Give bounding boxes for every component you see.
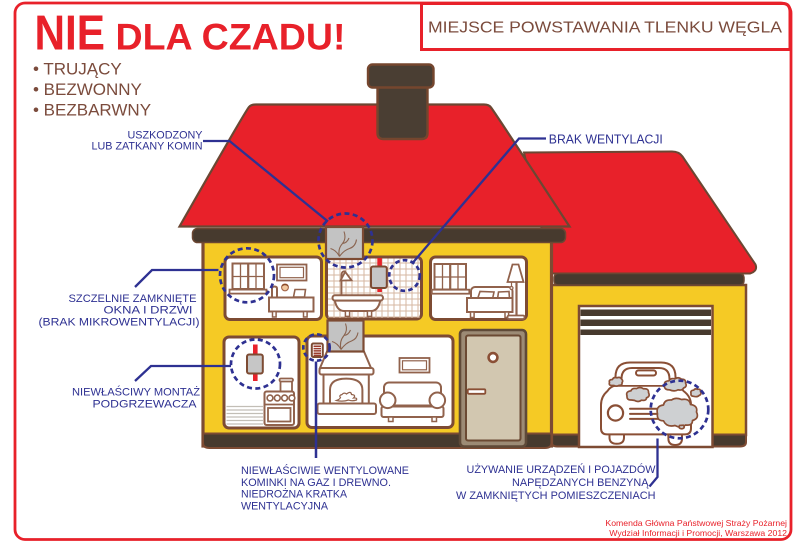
- svg-text:DLA CZADU!: DLA CZADU!: [116, 17, 346, 58]
- svg-text:W ZAMKNIĘTYCH POMIESZCZENIACH: W ZAMKNIĘTYCH POMIESZCZENIACH: [456, 490, 656, 502]
- svg-text:OKNA I DRZWI: OKNA I DRZWI: [104, 305, 193, 317]
- svg-text:MIEJSCE POWSTAWANIA TLENKU WĘG: MIEJSCE POWSTAWANIA TLENKU WĘGLA: [428, 20, 782, 37]
- svg-text:PODGRZEWACZA: PODGRZEWACZA: [93, 399, 198, 411]
- svg-text:SZCZELNIE ZAMKNIĘTE: SZCZELNIE ZAMKNIĘTE: [69, 293, 197, 305]
- svg-text:Wydział Informacji i Promocji,: Wydział Informacji i Promocji, Warszawa …: [609, 528, 787, 538]
- svg-text:NIEWŁAŚCIWIE WENTYLOWANE: NIEWŁAŚCIWIE WENTYLOWANE: [241, 464, 409, 477]
- svg-text:• BEZWONNY: • BEZWONNY: [33, 80, 142, 99]
- svg-text:Komenda Główna Państwowej Stra: Komenda Główna Państwowej Straży Pożarne…: [605, 518, 787, 528]
- svg-text:• TRUJĄCY: • TRUJĄCY: [33, 60, 122, 79]
- svg-text:KOMINKI NA GAZ I DREWNO.: KOMINKI NA GAZ I DREWNO.: [241, 477, 391, 489]
- svg-text:NIE: NIE: [35, 6, 106, 61]
- svg-text:NIEDROŻNA KRATKA: NIEDROŻNA KRATKA: [241, 488, 348, 501]
- svg-text:NAPĘDZANYCH BENZYNĄ: NAPĘDZANYCH BENZYNĄ: [512, 477, 649, 489]
- svg-text:LUB ZATKANY KOMIN: LUB ZATKANY KOMIN: [92, 141, 203, 153]
- svg-text:UŻYWANIE URZĄDZEŃ I POJAZDÓW: UŻYWANIE URZĄDZEŃ I POJAZDÓW: [467, 463, 657, 476]
- svg-text:WENTYLACYJNA: WENTYLACYJNA: [241, 501, 329, 513]
- svg-text:USZKODZONY: USZKODZONY: [128, 129, 203, 141]
- svg-text:BRAK WENTYLACJI: BRAK WENTYLACJI: [549, 132, 663, 147]
- svg-text:NIEWŁAŚCIWY MONTAŻ: NIEWŁAŚCIWY MONTAŻ: [72, 386, 200, 399]
- svg-text:• BEZBARWNY: • BEZBARWNY: [33, 100, 151, 119]
- svg-text:(BRAK MIKROWENTYLACJI): (BRAK MIKROWENTYLACJI): [39, 316, 200, 328]
